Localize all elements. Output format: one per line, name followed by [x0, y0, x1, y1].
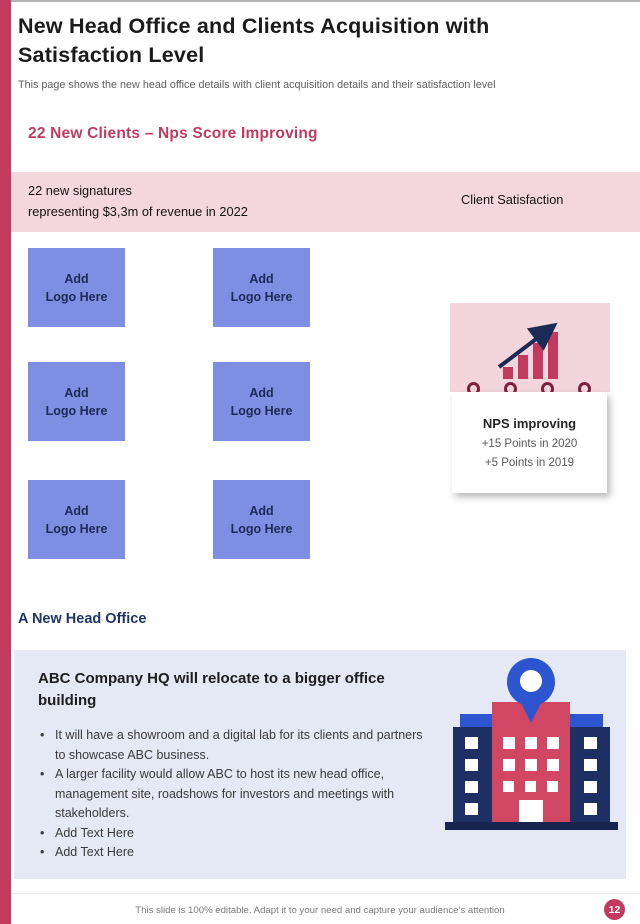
- footer-note: This slide is 100% editable. Adapt it to…: [0, 905, 640, 916]
- logo-placeholder-label: Add Logo Here: [231, 384, 293, 420]
- clients-section-heading: 22 New Clients – Nps Score Improving: [28, 125, 318, 143]
- logo-placeholder-label: Add Logo Here: [46, 270, 108, 306]
- signatures-banner: 22 new signatures representing $3,3m of …: [11, 172, 640, 232]
- panel-title: ABC Company HQ will relocate to a bigger…: [38, 668, 420, 712]
- office-section-heading: A New Head Office: [18, 611, 146, 627]
- logo-placeholder-label: Add Logo Here: [46, 502, 108, 538]
- logo-placeholder-label: Add Logo Here: [46, 384, 108, 420]
- nps-points-2019: +5 Points in 2019: [452, 457, 607, 469]
- logo-placeholder-3[interactable]: Add Logo Here: [28, 362, 125, 441]
- slide-page: New Head Office and Clients Acquisition …: [0, 0, 640, 924]
- logo-placeholder-label: Add Logo Here: [231, 270, 293, 306]
- logo-placeholder-1[interactable]: Add Logo Here: [28, 248, 125, 327]
- client-satisfaction-label: Client Satisfaction: [461, 192, 563, 207]
- logo-placeholder-label: Add Logo Here: [231, 502, 293, 538]
- nps-score-card: NPS improving +15 Points in 2020 +5 Poin…: [452, 392, 607, 493]
- bullet-item[interactable]: Add Text Here: [38, 843, 424, 863]
- logo-placeholder-4[interactable]: Add Logo Here: [213, 362, 310, 441]
- signatures-text: 22 new signatures representing $3,3m of …: [28, 180, 248, 222]
- page-subtitle: This page shows the new head office deta…: [18, 79, 618, 91]
- bullet-item: It will have a showroom and a digital la…: [38, 726, 424, 765]
- logo-placeholder-6[interactable]: Add Logo Here: [213, 480, 310, 559]
- office-building-location-pin-icon: [443, 655, 619, 831]
- bullet-item: A larger facility would allow ABC to hos…: [38, 765, 424, 824]
- nps-points-2020: +15 Points in 2020: [452, 438, 607, 450]
- nps-card-title: NPS improving: [452, 416, 607, 431]
- bullet-item[interactable]: Add Text Here: [38, 824, 424, 844]
- rising-bar-chart-icon: [450, 303, 610, 392]
- logo-placeholder-2[interactable]: Add Logo Here: [213, 248, 310, 327]
- logo-placeholder-5[interactable]: Add Logo Here: [28, 480, 125, 559]
- left-accent-bar: [0, 0, 11, 924]
- panel-bullet-list: It will have a showroom and a digital la…: [38, 726, 424, 863]
- page-title: New Head Office and Clients Acquisition …: [18, 12, 578, 70]
- page-number-badge: 12: [604, 899, 625, 920]
- nps-chart-icon-panel: [450, 303, 610, 392]
- top-border-line: [11, 0, 640, 2]
- footer-divider: [11, 893, 640, 894]
